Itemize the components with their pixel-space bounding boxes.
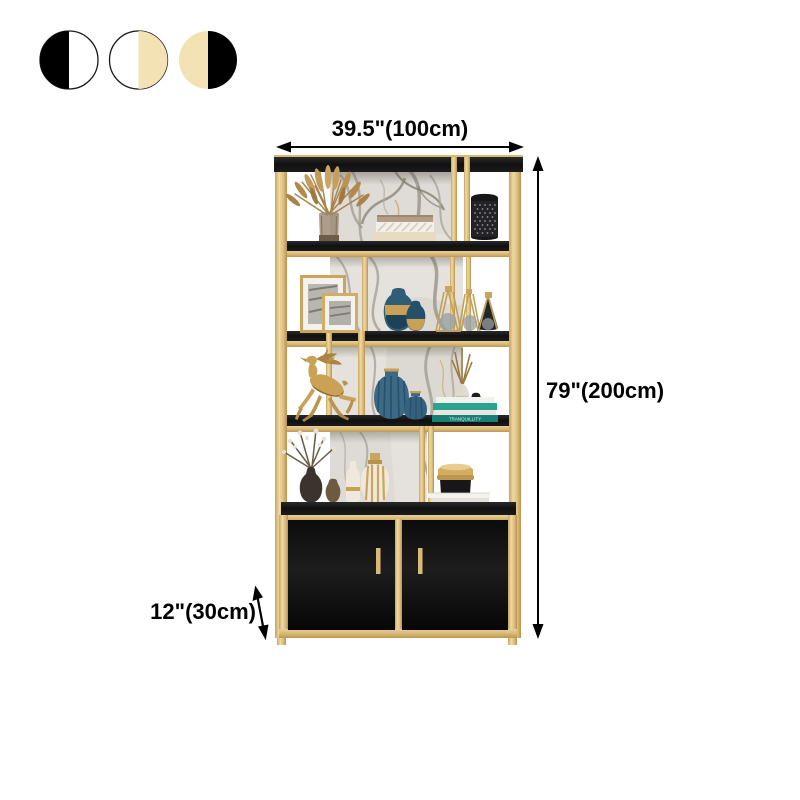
- svg-text:12"(30cm): 12"(30cm): [150, 599, 256, 624]
- svg-text:39.5"(100cm): 39.5"(100cm): [332, 116, 468, 141]
- svg-text:TRANQUILLITY: TRANQUILLITY: [449, 417, 481, 422]
- svg-text:79"(200cm): 79"(200cm): [546, 378, 664, 403]
